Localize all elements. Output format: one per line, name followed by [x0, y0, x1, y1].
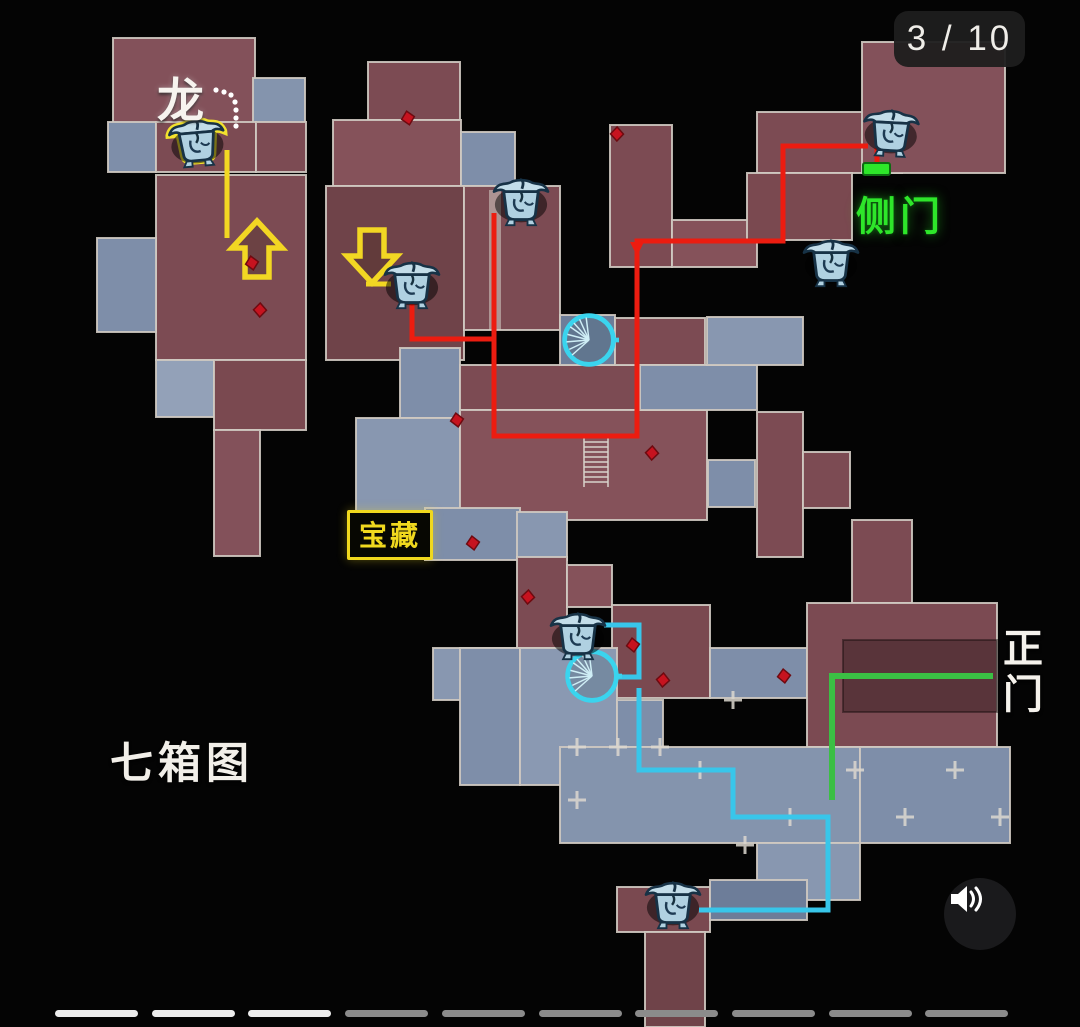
- mute-button[interactable]: [944, 878, 1016, 950]
- side-door-label: 侧门: [856, 184, 944, 242]
- progress-dash-7[interactable]: [635, 1010, 718, 1017]
- page-counter: 3 / 10: [894, 11, 1025, 67]
- progress-dash-3[interactable]: [248, 1010, 331, 1017]
- green-door-marker: [863, 163, 890, 175]
- map-viewer: 龙 侧门 宝藏 正门 七箱图 3 / 10: [0, 0, 1080, 1027]
- progress-dash-8[interactable]: [732, 1010, 815, 1017]
- volume-icon: [944, 878, 986, 920]
- progress-dash-2[interactable]: [152, 1010, 235, 1017]
- progress-dash-bar: [0, 1004, 1080, 1022]
- progress-dash-9[interactable]: [829, 1010, 912, 1017]
- progress-dash-5[interactable]: [442, 1010, 525, 1017]
- map-canvas: [0, 0, 1080, 1027]
- treasure-chest-icon: [804, 241, 858, 287]
- progress-dash-6[interactable]: [539, 1010, 622, 1017]
- treasure-label: 宝藏: [347, 510, 433, 560]
- progress-dash-4[interactable]: [345, 1010, 428, 1017]
- map-title: 七箱图: [110, 729, 254, 791]
- progress-dash-1[interactable]: [55, 1010, 138, 1017]
- dragon-label: 龙: [157, 62, 204, 131]
- progress-dash-10[interactable]: [925, 1010, 1008, 1017]
- main-door-label: 正门: [1003, 626, 1049, 718]
